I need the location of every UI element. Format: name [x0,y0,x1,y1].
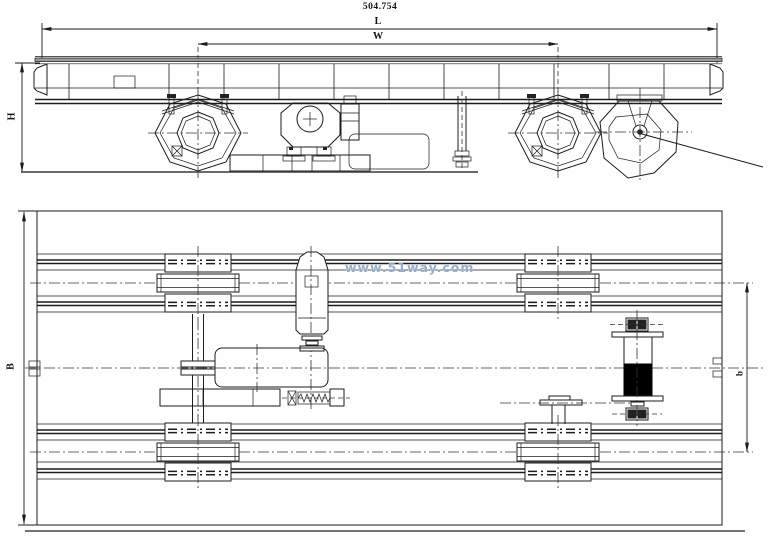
dim-label-B: B [6,359,17,375]
bed-plate [160,389,280,406]
plan-wheel-lower-left [157,415,239,489]
geared-coupling [282,389,350,406]
hoist-motor-plan [296,246,328,410]
girder-access-plate [114,76,135,88]
rope-drum-elevation [596,88,763,183]
runway-rails [25,254,766,479]
elevation-view [15,23,763,183]
leader-line [642,134,763,167]
dim-label-W: W [360,31,396,42]
crane-trolley-drawing: 504.754 L W H B b www.51way.com [0,0,769,536]
dimension-line-L [42,23,717,63]
travel-motor-elevation [230,96,429,171]
plan-view [18,211,766,531]
watermark-text: www.51way.com [345,260,465,275]
dimension-line-H [15,63,40,172]
plan-wheel-upper-right [517,246,599,320]
dim-label-b: b [735,367,746,381]
drum-black-body [624,364,652,396]
drive-shaft-left [181,314,215,423]
part-number-label: 504.754 [346,2,414,13]
girder-stiffeners [69,64,664,99]
brake-cylinder [341,104,359,140]
girder-end-cap-left [34,64,47,95]
plan-wheel-lower-right [517,415,599,489]
dim-label-L: L [360,16,396,27]
gear-cover-plate [349,134,429,169]
frame-edge-clips [29,358,722,377]
bridge-girder [34,57,723,104]
girder-end-cap-right [710,64,723,95]
suspension-rod [453,91,471,168]
dimension-line-W [198,44,558,92]
dim-label-H: H [7,109,18,125]
plan-wheel-upper-left [157,246,239,320]
